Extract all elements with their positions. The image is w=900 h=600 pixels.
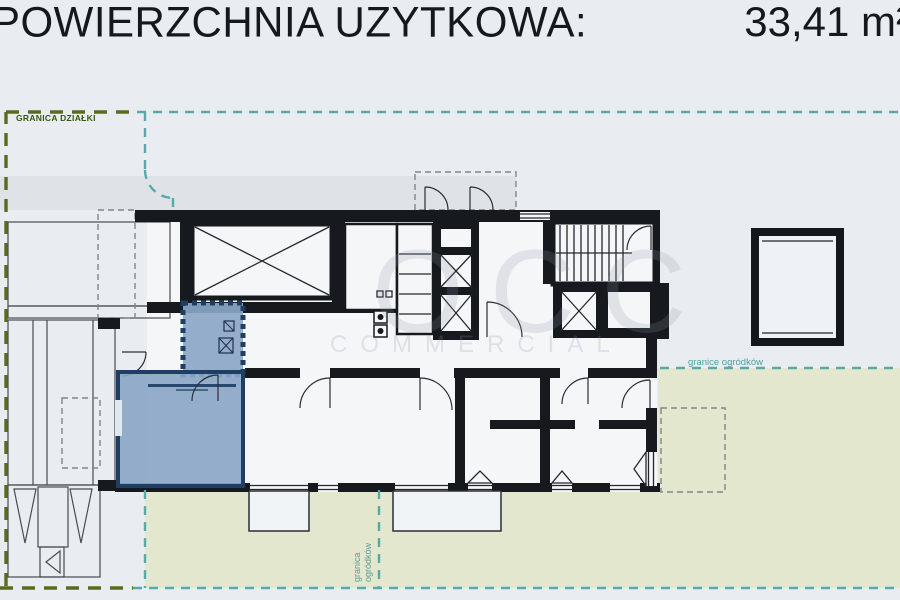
garden-right [658,368,900,492]
floor-plan-page: POWIERZCHNIA UZYTKOWA: 33,41 m² [0,0,900,600]
terrace [393,491,501,531]
wall-stub [98,318,120,329]
overhang-band [0,176,516,210]
plot-boundary-label: GRANICA DZIAŁKI [16,113,96,123]
page-title: POWIERZCHNIA UZYTKOWA: [0,0,587,46]
header: POWIERZCHNIA UZYTKOWA: 33,41 m² [0,0,900,60]
annex [755,232,840,342]
window [520,212,550,220]
door-opening [420,368,454,378]
usable-area-value: 33,41 m² [744,0,900,46]
door-opening [560,368,588,378]
window [610,483,640,492]
wall [455,378,465,483]
window [318,483,338,492]
floor-plan-drawing: OCC COMMERCIAL GRANICA DZIAŁKI granice o… [0,60,900,600]
door-opening [575,420,599,429]
annex-building [755,232,840,342]
wall [540,378,550,483]
bathroom [183,303,243,375]
terrace [249,491,309,531]
room-label-line [148,384,236,387]
apartment-window [115,400,122,436]
watermark: OCC COMMERCIAL [330,226,712,358]
garden-boundary-label-bottom: ogródków [363,542,373,582]
watermark-word: COMMERCIAL [330,331,623,358]
garden-boundary-label-bottom: granica [352,552,362,582]
upper-overhang [0,172,516,210]
garden-boundary-label-right: granice ogródków [688,357,763,368]
door-opening [646,378,657,408]
door-opening [300,368,330,378]
wall [490,420,648,429]
room-label-line [176,389,208,391]
